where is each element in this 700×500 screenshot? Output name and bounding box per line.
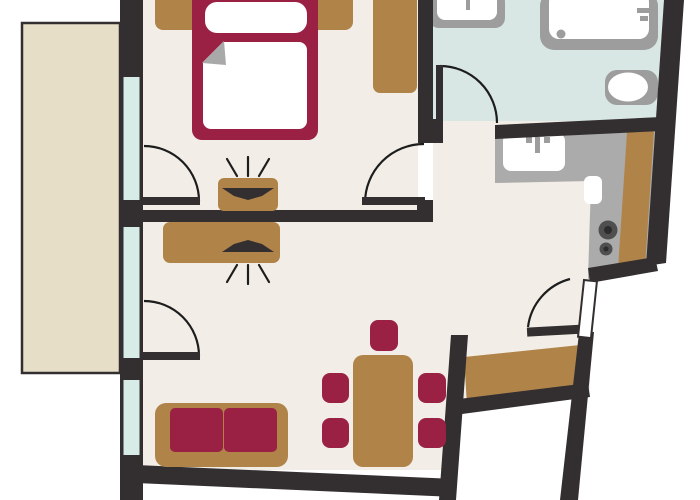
shower-drain-icon (557, 30, 566, 39)
bathroom-door-leaf (436, 65, 443, 123)
floor-plan-canvas (0, 0, 700, 500)
dining-chair-left-1 (322, 373, 349, 403)
sofa-cushion-right (224, 408, 277, 452)
kitchen-faucet-handle-left-icon (526, 137, 532, 143)
wall-bedroom-east (418, 0, 433, 143)
shower-control-icon (637, 8, 649, 13)
kitchen-sink (503, 133, 565, 171)
kitchen-faucet-icon (535, 137, 540, 153)
window-living-upper (124, 227, 140, 358)
wardrobe (373, 0, 417, 93)
bedroom-door-leaf (362, 197, 425, 205)
balcony-floor (22, 23, 120, 373)
window-living-lower (124, 380, 140, 455)
floor-plan (0, 0, 700, 500)
window-bedroom (124, 77, 140, 200)
dining-chair-right-1 (418, 373, 446, 403)
sofa-cushion-left (170, 408, 223, 452)
toilet-bowl (608, 73, 648, 102)
cooktop-burner-small-center (604, 247, 609, 252)
wall-bedroom-living-divider (138, 210, 433, 222)
shower-control-icon-2 (640, 16, 648, 21)
washbasin-faucet-icon (466, 0, 470, 10)
counter-small-basin (584, 176, 602, 204)
living-balcony-door-leaf (143, 352, 200, 360)
bedroom-balcony-door-leaf (143, 197, 200, 205)
dining-chair-right-2 (418, 418, 446, 448)
living-tv-cabinet (163, 222, 280, 263)
dining-chair-left-2 (322, 418, 349, 448)
cooktop-burner-large-center (604, 226, 612, 234)
dining-table (353, 355, 413, 467)
dining-chair-top (370, 320, 398, 351)
bed-pillow (205, 2, 307, 33)
kitchen-faucet-handle-right-icon (544, 137, 550, 143)
